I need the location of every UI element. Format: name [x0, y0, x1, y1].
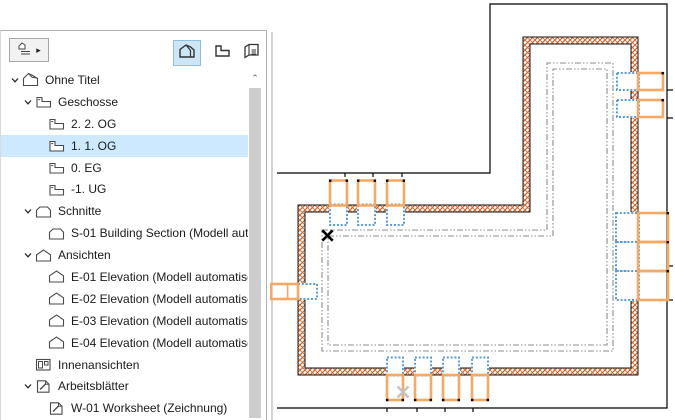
- project-map-tree: Ohne TitelGeschosse2. 2. OG1. 1. OG0. EG…: [1, 69, 249, 420]
- window-hotspot: [403, 180, 405, 182]
- tree-item-geschosse[interactable]: Geschosse: [1, 91, 249, 113]
- story-icon: [35, 94, 52, 109]
- story-icon: [48, 160, 65, 175]
- window-hotspot: [386, 180, 388, 182]
- tree-item-0-eg[interactable]: 0. EG: [1, 157, 249, 179]
- reference-ticks: [345, 90, 673, 412]
- tree-item-label: E-03 Elevation (Modell automatisch: [71, 314, 249, 328]
- window-right: [638, 73, 663, 90]
- scrollbar-thumb[interactable]: [249, 88, 261, 418]
- tree-item-ohne-titel[interactable]: Ohne Titel: [1, 69, 249, 91]
- layout-book-tab[interactable]: [237, 40, 265, 66]
- window-hotspot: [667, 212, 669, 214]
- window-hotspot: [471, 399, 473, 401]
- window-hotspot: [667, 270, 669, 272]
- project-icon: [22, 72, 39, 87]
- tree-item-label: Innenansichten: [58, 358, 139, 372]
- tree-item-label: S-01 Building Section (Modell auto: [71, 226, 249, 240]
- window-hotspot: [430, 399, 432, 401]
- tree-item-label: Ansichten: [58, 248, 111, 262]
- window-hotspot: [487, 399, 489, 401]
- window-right: [638, 213, 668, 242]
- project-chooser-icon: [17, 40, 33, 61]
- elevation-icon: [48, 335, 65, 350]
- expander-chevron-icon[interactable]: [21, 250, 35, 260]
- navigator-toolbar: ▸: [1, 31, 266, 69]
- tree-item-label: Ohne Titel: [45, 73, 100, 87]
- elevation-icon: [48, 291, 65, 306]
- worksheet-icon: [35, 379, 52, 394]
- tree-item-s-01-building-section-modell-auto[interactable]: S-01 Building Section (Modell auto: [1, 222, 249, 244]
- tree-item-w-01-worksheet-zeichnung[interactable]: W-01 Worksheet (Zeichnung): [1, 397, 249, 419]
- window-hotspot: [667, 241, 669, 243]
- tree-scrollbar[interactable]: ⌃: [248, 69, 262, 420]
- tree-item-label: 2. 2. OG: [71, 117, 116, 131]
- window-hotspot: [402, 399, 404, 401]
- walls: [298, 37, 638, 375]
- window-bottom: [443, 375, 459, 400]
- window-top: [330, 181, 347, 206]
- story-icon: [48, 138, 65, 153]
- expander-chevron-icon[interactable]: [8, 75, 22, 85]
- project-chooser-button[interactable]: ▸: [9, 38, 49, 62]
- window-hotspot: [442, 399, 444, 401]
- tree-item-label: Geschosse: [58, 95, 118, 109]
- interior-icon: [35, 357, 52, 372]
- expander-chevron-icon[interactable]: [21, 97, 35, 107]
- window-hotspot: [374, 180, 376, 182]
- elevation-icon: [48, 313, 65, 328]
- view-map-tab[interactable]: [208, 40, 236, 66]
- window-right: [638, 242, 668, 271]
- elevation-icon: [48, 269, 65, 284]
- tree-item-label: -1. UG: [71, 182, 106, 196]
- tree-item-label: Arbeitsblätter: [58, 379, 129, 393]
- tree-item-2-2-og[interactable]: 2. 2. OG: [1, 113, 249, 135]
- window-right: [638, 100, 663, 117]
- window-bottom: [472, 375, 488, 400]
- navigator-palette: ▸: [0, 30, 267, 420]
- windows-layer: [271, 72, 669, 401]
- tree-item-e-01-elevation-modell-automatisch[interactable]: E-01 Elevation (Modell automatisch: [1, 266, 249, 288]
- chooser-dropdown-arrow: ▸: [36, 46, 41, 55]
- story-icon: [48, 116, 65, 131]
- window-hotspot: [662, 99, 664, 101]
- tree-item-ansichten[interactable]: Ansichten: [1, 244, 249, 266]
- expander-chevron-icon[interactable]: [21, 381, 35, 391]
- layout-book-icon: [240, 41, 262, 66]
- project-map-icon: [176, 41, 198, 66]
- tree-item-1-1-og[interactable]: 1. 1. OG: [1, 135, 249, 157]
- window-top: [358, 181, 375, 206]
- tree-item-e-02-elevation-modell-automatisch[interactable]: E-02 Elevation (Modell automatisch: [1, 288, 249, 310]
- tree-item-label: 1. 1. OG: [71, 139, 116, 153]
- story-icon: [48, 182, 65, 197]
- window-frame-line: [287, 284, 289, 299]
- tree-item-label: E-02 Elevation (Modell automatisch: [71, 292, 249, 306]
- window-right: [638, 271, 668, 300]
- window-hotspot: [414, 399, 416, 401]
- floor-plan-canvas[interactable]: [270, 0, 675, 420]
- window-hotspot: [346, 180, 348, 182]
- tree-item-label: Schnitte: [58, 204, 101, 218]
- worksheet-icon: [48, 401, 65, 416]
- window-hotspot: [458, 399, 460, 401]
- tree-item-schnitte[interactable]: Schnitte: [1, 200, 249, 222]
- app-window: ▸: [0, 0, 675, 420]
- tree-item-label: W-01 Worksheet (Zeichnung): [71, 401, 227, 415]
- tree-item-label: E-01 Elevation (Modell automatisch: [71, 270, 249, 284]
- tree-item-arbeitsbl-tter[interactable]: Arbeitsblätter: [1, 375, 249, 397]
- window-hotspot: [386, 399, 388, 401]
- elevation-icon: [35, 248, 52, 263]
- window-bottom: [415, 375, 431, 400]
- tree-item-label: E-04 Elevation (Modell automatisch: [71, 336, 249, 350]
- view-map-icon: [211, 41, 233, 66]
- tree-item-innenansichten[interactable]: Innenansichten: [1, 354, 249, 376]
- tree-item-e-04-elevation-modell-automatisch[interactable]: E-04 Elevation (Modell automatisch: [1, 332, 249, 354]
- window-bottom: [387, 375, 403, 400]
- tree-item-label: 0. EG: [71, 161, 102, 175]
- project-map-tab[interactable]: [173, 40, 201, 66]
- section-icon: [35, 204, 52, 219]
- tree-item-e-03-elevation-modell-automatisch[interactable]: E-03 Elevation (Modell automatisch: [1, 310, 249, 332]
- window-hotspot: [329, 180, 331, 182]
- window-hotspot: [662, 72, 664, 74]
- window-hotspot: [357, 180, 359, 182]
- expander-chevron-icon[interactable]: [21, 206, 35, 216]
- window-left: [271, 284, 298, 299]
- window-top: [387, 181, 404, 206]
- scrollbar-up-arrow[interactable]: ⌃: [248, 72, 262, 84]
- section-icon: [48, 226, 65, 241]
- tree-item-1-ug[interactable]: -1. UG: [1, 178, 249, 200]
